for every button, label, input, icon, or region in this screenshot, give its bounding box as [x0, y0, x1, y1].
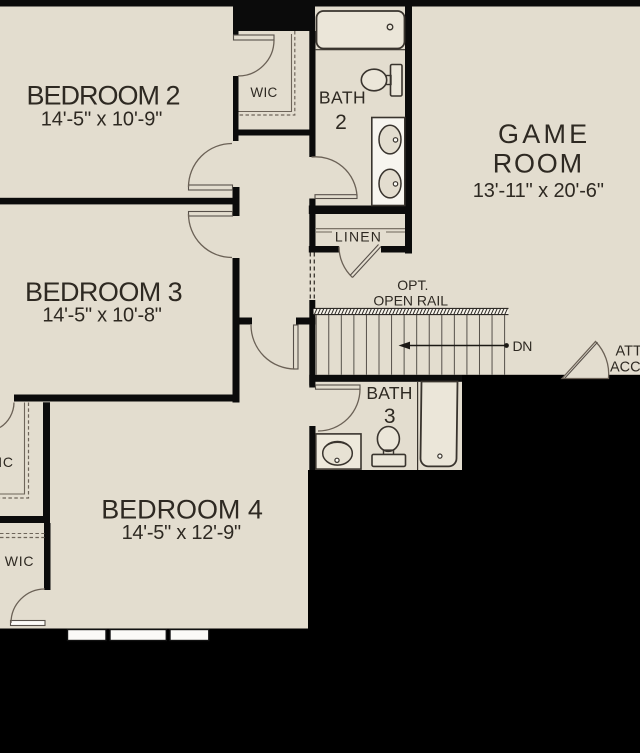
- svg-text:BATH: BATH: [366, 383, 412, 403]
- svg-text:13'-11" x 20'-6": 13'-11" x 20'-6": [473, 180, 604, 202]
- svg-text:WIC: WIC: [0, 454, 14, 470]
- svg-text:BEDROOM 3: BEDROOM 3: [25, 277, 182, 307]
- svg-text:BEDROOM 2: BEDROOM 2: [26, 81, 179, 111]
- svg-text:14'-5" x 10'-9": 14'-5" x 10'-9": [41, 109, 163, 131]
- svg-text:ACCESS: ACCESS: [610, 360, 640, 376]
- svg-text:BEDROOM 4: BEDROOM 4: [101, 495, 263, 525]
- svg-text:ROOM: ROOM: [493, 149, 584, 179]
- svg-text:3: 3: [384, 405, 396, 428]
- svg-text:14'-5" x 10'-8": 14'-5" x 10'-8": [42, 305, 161, 327]
- svg-text:OPEN RAIL: OPEN RAIL: [373, 292, 448, 308]
- svg-text:ATTIC: ATTIC: [616, 344, 640, 360]
- svg-text:WIC: WIC: [250, 85, 277, 100]
- svg-text:GAME: GAME: [498, 119, 590, 149]
- svg-text:LINEN: LINEN: [335, 229, 382, 245]
- svg-text:2: 2: [335, 111, 347, 134]
- svg-text:WIC: WIC: [5, 553, 35, 569]
- svg-text:OPT.: OPT.: [397, 277, 428, 293]
- svg-text:14'-5" x 12'-9": 14'-5" x 12'-9": [122, 522, 241, 544]
- svg-text:BATH: BATH: [319, 88, 366, 108]
- svg-text:DN: DN: [513, 338, 533, 354]
